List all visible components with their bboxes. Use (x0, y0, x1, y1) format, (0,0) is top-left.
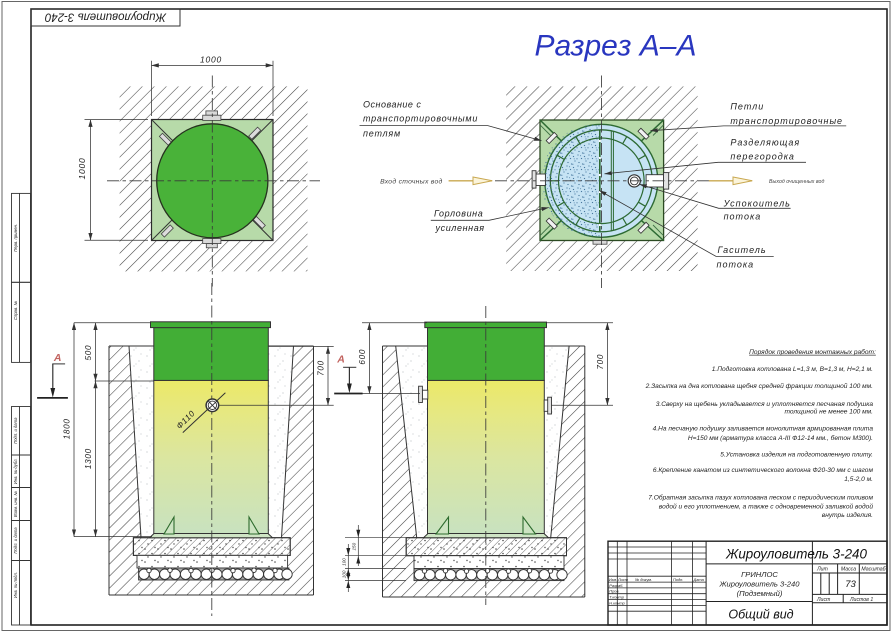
svg-text:Т.контр: Т.контр (609, 595, 624, 600)
svg-text:3.Сверху на щебень укладываетс: 3.Сверху на щебень укладывается и уплотн… (656, 400, 874, 408)
svg-text:Дата: Дата (693, 577, 705, 582)
svg-text:Пров.: Пров. (609, 589, 619, 594)
svg-text:700: 700 (596, 354, 605, 370)
svg-text:7.Обратная засыпка пазух котло: 7.Обратная засыпка пазух котлована песко… (648, 494, 873, 502)
svg-text:Вход сточных вод: Вход сточных вод (380, 177, 442, 185)
svg-text:700: 700 (317, 360, 326, 376)
svg-text:А: А (53, 352, 62, 364)
svg-text:Листов 1: Листов 1 (849, 597, 873, 603)
svg-text:толщиной не менее 100 мм.: толщиной не менее 100 мм. (784, 407, 873, 415)
svg-text:Инв. № дубл.: Инв. № дубл. (13, 458, 18, 484)
svg-text:Справ. №: Справ. № (13, 301, 18, 320)
svg-text:1300: 1300 (84, 448, 93, 469)
svg-text:1,5-2,0 м.: 1,5-2,0 м. (844, 476, 873, 483)
svg-text:Жироуловитель 3-240: Жироуловитель 3-240 (725, 547, 867, 562)
svg-text:1.Подготовка котлована L=1,3 м: 1.Подготовка котлована L=1,3 м, В=1,3 м,… (712, 365, 873, 373)
svg-text:Перв. примен.: Перв. примен. (13, 224, 18, 252)
svg-text:Н.контр: Н.контр (609, 600, 625, 605)
svg-text:Инв. № подл.: Инв. № подл. (13, 572, 18, 598)
svg-text:транспортировочные: транспортировочные (730, 116, 843, 126)
svg-text:Успокоитель: Успокоитель (723, 199, 791, 209)
svg-text:Подп.: Подп. (673, 577, 683, 582)
svg-text:(Подземный): (Подземный) (737, 589, 783, 598)
svg-text:Петли: Петли (730, 102, 764, 112)
svg-text:100: 100 (342, 570, 347, 578)
svg-text:150: 150 (351, 542, 356, 550)
svg-text:потока: потока (717, 259, 755, 269)
svg-text:Масса: Масса (841, 567, 856, 573)
svg-text:Подп. и дата: Подп. и дата (13, 527, 18, 554)
svg-text:5.Установка изделия на подгото: 5.Установка изделия на подготовленную пл… (720, 451, 873, 459)
svg-text:73: 73 (845, 579, 856, 590)
svg-text:Порядок проведения монтажных р: Порядок проведения монтажных работ: (749, 348, 876, 356)
svg-text:Общий вид: Общий вид (728, 607, 793, 621)
svg-text:1000: 1000 (77, 157, 87, 179)
svg-text:Масштаб: Масштаб (861, 567, 886, 573)
svg-text:внутрь изделия.: внутрь изделия. (822, 511, 873, 519)
svg-text:2.Засыпка на дна котлована щеб: 2.Засыпка на дна котлована щебня средней… (645, 382, 874, 390)
svg-text:Горловина: Горловина (434, 209, 483, 219)
svg-text:потока: потока (724, 212, 762, 222)
svg-text:водой и его уплотнением, а так: водой и его уплотнением, а также с однов… (659, 503, 874, 511)
svg-text:Лист: Лист (617, 577, 629, 582)
svg-text:транспортировочными: транспортировочными (363, 114, 478, 124)
svg-text:усиленная: усиленная (435, 223, 485, 233)
svg-text:600: 600 (358, 349, 367, 365)
svg-text:500: 500 (84, 345, 93, 361)
svg-text:6.Крепление канатом из синтети: 6.Крепление канатом из синтетического во… (653, 467, 874, 474)
svg-text:Разрез А–А: Разрез А–А (535, 30, 697, 63)
svg-text:Основание с: Основание с (363, 100, 421, 110)
svg-text:петлям: петлям (363, 129, 401, 139)
svg-text:Разделяющая: Разделяющая (730, 137, 800, 147)
svg-text:Подп. и дата: Подп. и дата (13, 417, 18, 444)
svg-text:Взам. инв. №: Взам. инв. № (13, 491, 18, 517)
svg-text:Лист: Лист (816, 597, 831, 603)
svg-text:№ докум.: № докум. (635, 577, 652, 582)
svg-text:А: А (336, 354, 345, 366)
svg-text:100: 100 (342, 558, 347, 566)
svg-text:4.На песчаную подушку заливает: 4.На песчаную подушку заливается монолит… (653, 424, 874, 432)
svg-text:Изм.: Изм. (609, 577, 617, 582)
svg-text:Гаситель: Гаситель (718, 245, 767, 255)
svg-text:Н=150 мм (арматура класса А-II: Н=150 мм (арматура класса А-III Ф12-14 м… (688, 434, 873, 442)
svg-text:перегородка: перегородка (730, 151, 795, 161)
svg-text:Выход очищенных вод: Выход очищенных вод (769, 179, 824, 185)
svg-text:Лит: Лит (816, 567, 828, 573)
svg-text:ГРИНЛОС: ГРИНЛОС (741, 570, 778, 579)
svg-text:Жироуловитель 3-240: Жироуловитель 3-240 (44, 11, 167, 23)
svg-text:Жироуловитель 3-240: Жироуловитель 3-240 (719, 580, 801, 589)
svg-text:1800: 1800 (63, 418, 72, 439)
svg-text:1000: 1000 (200, 55, 222, 65)
svg-text:Разраб.: Разраб. (609, 583, 623, 588)
